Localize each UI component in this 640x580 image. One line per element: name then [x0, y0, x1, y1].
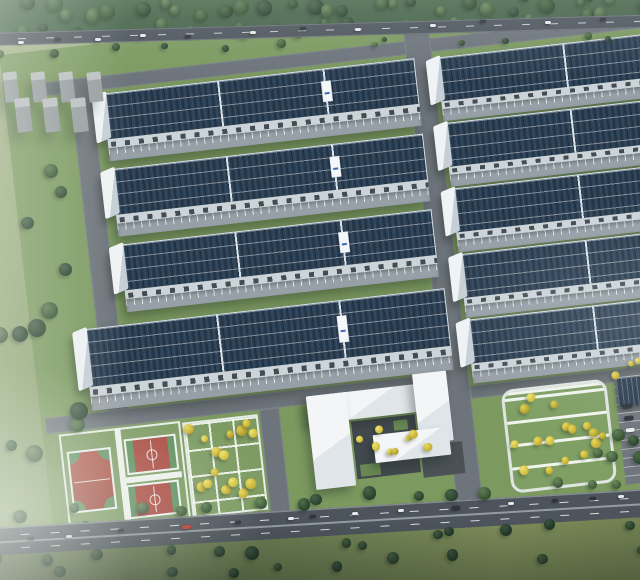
tree — [633, 451, 640, 464]
car — [508, 502, 514, 505]
tree — [70, 503, 80, 513]
car — [398, 509, 404, 512]
tree — [628, 435, 639, 446]
tree — [59, 263, 72, 276]
tree — [612, 480, 621, 489]
aerial-rendering — [0, 0, 640, 580]
car — [310, 515, 316, 518]
tree — [298, 498, 310, 510]
tree — [363, 486, 377, 500]
tree — [606, 451, 618, 463]
tree — [55, 186, 67, 198]
tree — [447, 549, 458, 560]
car — [452, 506, 460, 510]
tree — [332, 561, 343, 572]
car — [352, 512, 358, 515]
tree — [444, 527, 454, 537]
car — [235, 521, 241, 524]
tree — [26, 445, 43, 462]
car — [590, 497, 596, 500]
tree — [0, 327, 8, 343]
tree — [593, 448, 603, 458]
tree — [553, 477, 564, 488]
tree — [13, 510, 26, 523]
tree — [6, 440, 17, 451]
car — [618, 495, 624, 498]
tree — [342, 538, 351, 547]
tree — [137, 502, 149, 514]
tree — [433, 530, 443, 540]
red-truck — [182, 525, 191, 530]
tree — [588, 480, 597, 489]
tree — [537, 554, 547, 564]
tree — [28, 319, 46, 337]
tree — [41, 302, 58, 319]
car — [28, 537, 34, 540]
car — [288, 517, 294, 520]
tree — [42, 554, 53, 565]
tree — [310, 494, 322, 506]
tree — [201, 502, 212, 513]
tree — [478, 487, 491, 500]
tree — [414, 491, 424, 501]
tree — [445, 489, 458, 502]
tree — [176, 506, 186, 516]
tree — [387, 552, 399, 564]
tree — [54, 566, 65, 577]
car — [552, 499, 558, 502]
tree — [12, 326, 28, 342]
tree — [21, 217, 33, 229]
tree — [214, 546, 225, 557]
tree — [625, 521, 635, 531]
south-layer — [0, 0, 640, 580]
car — [118, 529, 124, 532]
tree — [70, 402, 88, 420]
tree — [255, 497, 267, 509]
car — [66, 535, 72, 538]
tree — [612, 429, 625, 442]
tree — [274, 563, 282, 571]
tree — [44, 164, 57, 177]
